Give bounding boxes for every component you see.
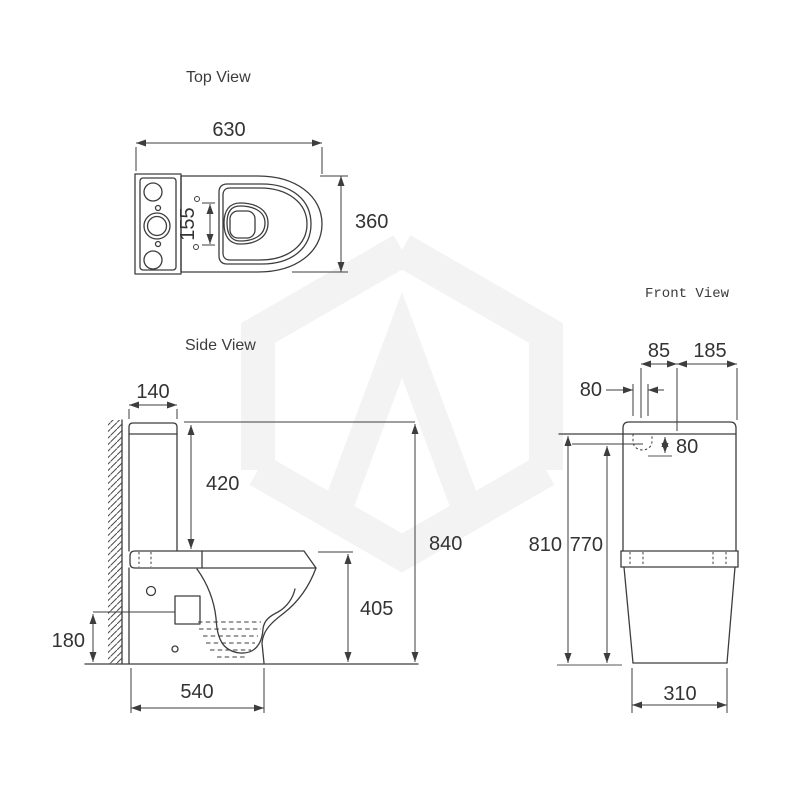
front-view-label: Front View	[645, 286, 730, 302]
dim-180-text: 180	[52, 630, 85, 652]
hexagon-logo-watermark	[258, 250, 546, 553]
top-view-bowl	[181, 176, 322, 272]
dim-140-text: 140	[136, 381, 169, 403]
dim-side-pan-height: 405	[318, 552, 393, 662]
dim-front-185: 185	[677, 340, 737, 420]
dim-360-text: 360	[355, 211, 388, 233]
dim-420-text: 420	[206, 473, 239, 495]
water-lines	[198, 622, 261, 657]
dim-540-text: 540	[180, 681, 213, 703]
front-view-tank	[559, 422, 736, 551]
dim-85-text: 85	[648, 340, 670, 362]
dim-840-text: 840	[429, 533, 462, 555]
dim-top-hinge-spacing: 155	[177, 197, 215, 250]
dim-top-overall-width: 630	[136, 119, 322, 174]
side-view-pan	[129, 551, 316, 663]
dim-side-cistern-depth: 140	[129, 381, 177, 419]
dim-side-cistern-height: 420	[191, 425, 239, 549]
dim-770-text: 770	[570, 534, 603, 556]
dim-side-pan-depth: 540	[131, 668, 264, 713]
dim-front-85: 85	[641, 340, 677, 431]
dim-80-depth-text: 80	[676, 436, 698, 458]
inlet-hole-dashed	[633, 434, 652, 450]
top-view-label: Top View	[186, 69, 251, 86]
dim-80-gap-text: 80	[580, 379, 602, 401]
dim-405-text: 405	[360, 598, 393, 620]
top-view: Top View 630	[135, 69, 388, 274]
dim-front-hole-depth: 80	[648, 436, 698, 458]
dim-310-text: 310	[663, 683, 696, 705]
side-view-label: Side View	[185, 337, 256, 354]
dim-185-text: 185	[693, 340, 726, 362]
toilet-dimension-drawing: Top View 630	[0, 0, 800, 800]
dim-front-base-width: 310	[632, 668, 727, 713]
side-view-cistern	[129, 423, 177, 551]
top-view-cistern	[135, 174, 181, 274]
dim-630-text: 630	[212, 119, 245, 141]
dim-810-text: 810	[529, 534, 562, 556]
dim-front-hole-gap: 80	[580, 379, 664, 416]
front-view-pan	[621, 551, 738, 663]
technical-drawing-page: Top View 630	[0, 0, 800, 800]
side-view-wall	[108, 420, 122, 664]
dim-front-height-770: 770	[570, 446, 607, 663]
dim-155-text: 155	[177, 207, 199, 240]
